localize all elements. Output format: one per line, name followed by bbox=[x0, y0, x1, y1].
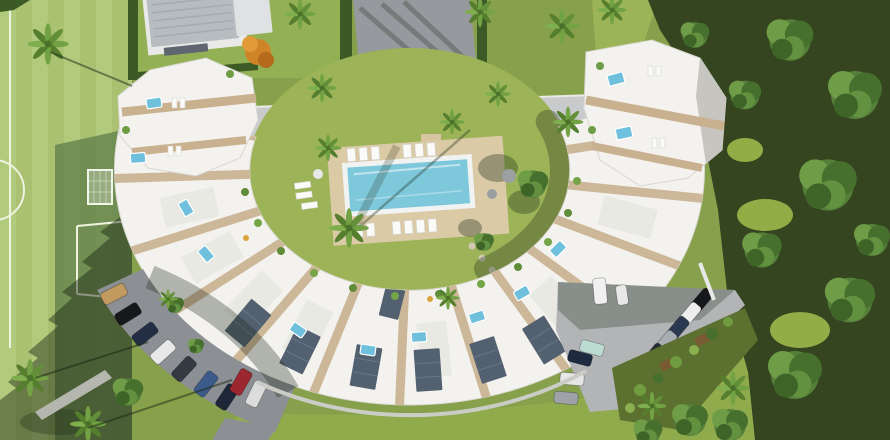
palm-tree bbox=[716, 371, 750, 405]
palm-tree bbox=[329, 208, 369, 248]
rooftop-pool bbox=[360, 344, 376, 356]
palm-tree bbox=[27, 23, 68, 64]
palm-tree bbox=[553, 107, 584, 138]
roof-planter bbox=[226, 70, 234, 78]
palm-tree bbox=[545, 9, 579, 43]
car bbox=[554, 391, 579, 405]
soccer-field bbox=[0, 0, 140, 440]
roof-planter bbox=[596, 62, 604, 70]
villa-wing-roof bbox=[233, 0, 273, 36]
palm-tree bbox=[158, 289, 178, 309]
rooftop-pool bbox=[130, 152, 146, 163]
palm-tree bbox=[315, 135, 342, 162]
palm-tree bbox=[439, 109, 464, 134]
round-table bbox=[313, 169, 323, 179]
aerial-render bbox=[0, 0, 890, 440]
palm-tree bbox=[436, 286, 459, 309]
hedge bbox=[128, 0, 138, 80]
roof-planter bbox=[122, 126, 130, 134]
screenshot-root bbox=[0, 0, 890, 440]
palm-tree bbox=[638, 392, 667, 421]
car bbox=[592, 277, 607, 304]
palm-tree bbox=[308, 74, 337, 103]
palm-tree bbox=[285, 0, 316, 29]
solar-panel bbox=[414, 348, 443, 392]
goal bbox=[88, 170, 112, 204]
rooftop-pool bbox=[146, 97, 162, 109]
tree bbox=[634, 419, 663, 440]
roof-planter bbox=[588, 126, 596, 134]
palm-tree bbox=[11, 359, 49, 397]
palm-tree bbox=[485, 81, 510, 106]
car bbox=[615, 284, 629, 305]
rooftop-pool bbox=[411, 331, 427, 342]
